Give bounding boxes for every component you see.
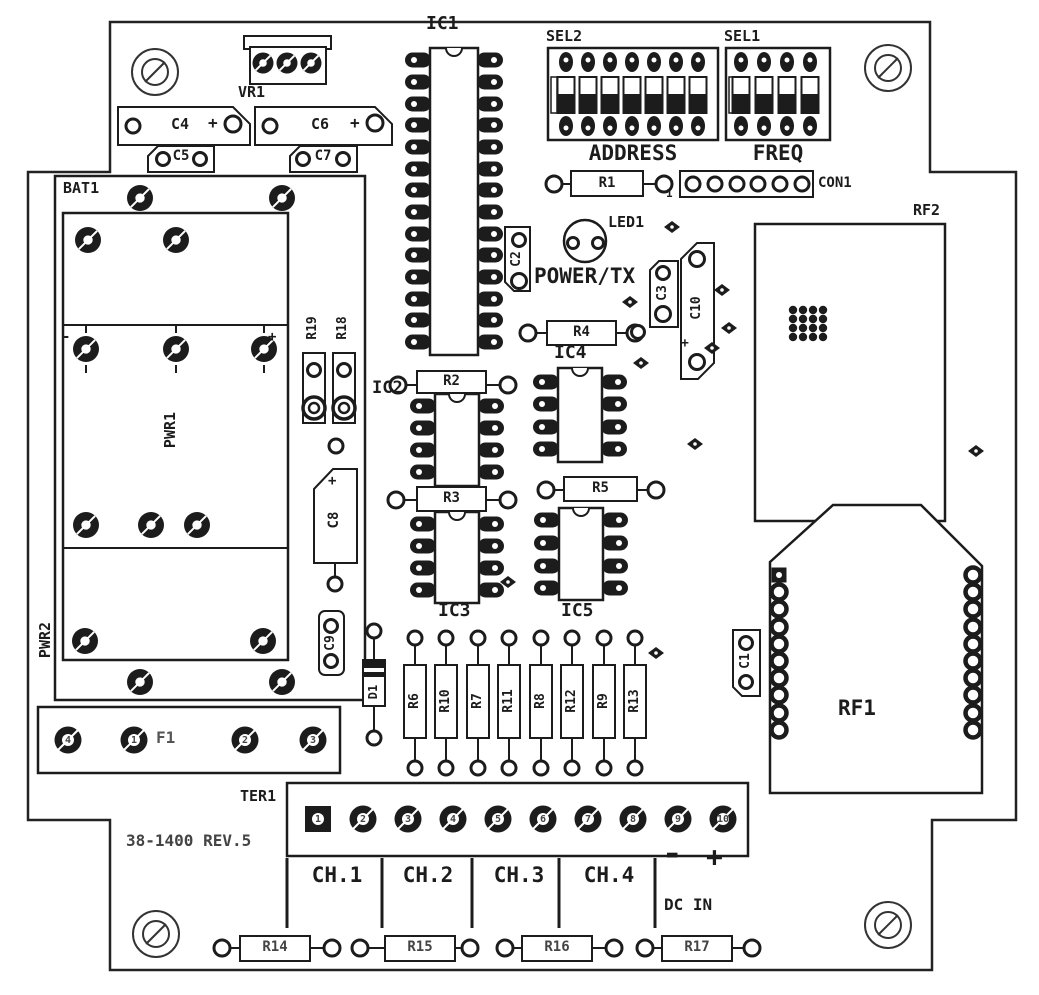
rf2-grid-dot xyxy=(799,324,807,332)
ic-pin xyxy=(410,517,436,532)
pad xyxy=(225,116,241,132)
ic-pin xyxy=(533,420,559,435)
rf2-grid-dot xyxy=(799,315,807,323)
pad xyxy=(966,723,981,738)
label-revision: 38-1400 REV.5 xyxy=(126,832,251,850)
pad xyxy=(439,631,453,645)
pad xyxy=(408,761,422,775)
ic-pin xyxy=(534,581,560,596)
label-ter1: TER1 xyxy=(240,788,276,805)
ic-pin xyxy=(533,375,559,390)
label-r16: R16 xyxy=(522,940,592,955)
pad xyxy=(568,238,579,249)
pad xyxy=(637,940,653,956)
label-address: ADDRESS xyxy=(548,142,718,165)
pad xyxy=(772,671,787,686)
label-r9: R9 xyxy=(594,661,614,741)
rf2-grid-dot xyxy=(799,333,807,341)
pad xyxy=(772,620,787,635)
dip-handle xyxy=(668,94,684,112)
pad xyxy=(597,631,611,645)
pad xyxy=(500,492,516,508)
pad xyxy=(606,940,622,956)
label-r11: R11 xyxy=(499,661,519,741)
label-ch3: CH.3 xyxy=(484,864,554,887)
pad xyxy=(263,119,277,133)
ic-pin xyxy=(477,183,503,198)
ic-pin xyxy=(534,536,560,551)
pad xyxy=(966,688,981,703)
label-c4-plus: + xyxy=(208,114,218,132)
svg-text:9: 9 xyxy=(675,814,681,825)
rf2-module-outline xyxy=(755,224,945,521)
svg-text:1: 1 xyxy=(131,735,137,746)
svg-text:5: 5 xyxy=(495,814,501,825)
ic-pin xyxy=(410,561,436,576)
pad xyxy=(538,482,554,498)
label-ch4: CH.4 xyxy=(574,864,644,887)
pad xyxy=(966,585,981,600)
label-c7: C7 xyxy=(298,149,348,164)
dip-handle xyxy=(733,94,749,112)
pad xyxy=(730,177,744,191)
pad xyxy=(966,602,981,617)
ic-pin xyxy=(405,183,431,198)
label-dc-in: DC IN xyxy=(664,896,712,914)
ic-pin xyxy=(477,205,503,220)
ic-pin xyxy=(405,97,431,112)
rf2-grid-dot xyxy=(789,315,797,323)
label-sel2: SEL2 xyxy=(546,28,582,45)
label-sel1: SEL1 xyxy=(724,28,760,45)
ic-pin xyxy=(533,442,559,457)
pad xyxy=(462,940,478,956)
label-freq: FREQ xyxy=(726,142,830,165)
label-r6: R6 xyxy=(405,661,425,741)
rf2-grid-dot xyxy=(819,324,827,332)
svg-text:4: 4 xyxy=(450,814,456,825)
dip-handle xyxy=(690,94,706,112)
pad xyxy=(367,115,383,131)
label-c8: C8 xyxy=(324,480,344,560)
svg-text:7: 7 xyxy=(585,814,591,825)
ic-pin xyxy=(405,270,431,285)
label-pwr1: PWR1 xyxy=(160,390,180,470)
dip-handle xyxy=(602,94,618,112)
svg-text:1: 1 xyxy=(315,814,321,825)
pad xyxy=(772,688,787,703)
rf2-grid-dot xyxy=(789,324,797,332)
label-c9: C9 xyxy=(321,603,341,683)
pad xyxy=(772,706,787,721)
label-dc-plus: + xyxy=(706,842,723,873)
ic-pin xyxy=(478,517,504,532)
ic-pin xyxy=(405,227,431,242)
ic-pin xyxy=(405,75,431,90)
pad xyxy=(565,631,579,645)
label-c8-plus: + xyxy=(328,474,336,489)
ic-pin xyxy=(477,270,503,285)
ic-pin xyxy=(405,313,431,328)
pad xyxy=(966,671,981,686)
ic-pin xyxy=(405,205,431,220)
svg-text:2: 2 xyxy=(360,814,366,825)
ic-pin xyxy=(405,335,431,350)
ic-pin xyxy=(534,513,560,528)
pad xyxy=(628,761,642,775)
ic-pin xyxy=(410,443,436,458)
pad xyxy=(565,761,579,775)
label-r2: R2 xyxy=(417,374,486,389)
ic-pin xyxy=(410,583,436,598)
ic-pin xyxy=(478,399,504,414)
label-pwr-plus: + xyxy=(268,330,276,345)
label-c2: C2 xyxy=(507,219,527,299)
label-r3: R3 xyxy=(417,491,486,506)
label-d1: D1 xyxy=(363,652,383,732)
pad xyxy=(471,761,485,775)
ic-pin xyxy=(601,375,627,390)
svg-text:6: 6 xyxy=(540,814,546,825)
ic-pin xyxy=(405,292,431,307)
dip-handle xyxy=(624,94,640,112)
pad xyxy=(214,940,230,956)
ic-pin xyxy=(477,75,503,90)
label-c6: C6 xyxy=(290,116,350,133)
ic-pin xyxy=(405,162,431,177)
label-rf1: RF1 xyxy=(838,697,876,720)
rf2-grid-dot xyxy=(819,333,827,341)
rf2-grid-dot xyxy=(789,306,797,314)
label-c3: C3 xyxy=(653,253,673,333)
rf1-module-outline xyxy=(770,505,982,793)
label-r4: R4 xyxy=(547,325,616,340)
rf2-grid-dot xyxy=(809,333,817,341)
rf2-grid-dot xyxy=(819,315,827,323)
ic-pin xyxy=(477,248,503,263)
label-r5: R5 xyxy=(564,481,637,496)
pad xyxy=(339,403,349,413)
rf2-grid-dot xyxy=(809,306,817,314)
label-power-tx: POWER/TX xyxy=(534,265,635,288)
pad xyxy=(772,723,787,738)
pad xyxy=(324,940,340,956)
ic-pin xyxy=(477,162,503,177)
ic-pin xyxy=(478,443,504,458)
ic-pin xyxy=(478,561,504,576)
pad xyxy=(690,355,705,370)
label-ic5: IC5 xyxy=(561,601,594,621)
pad xyxy=(329,439,343,453)
pad xyxy=(795,177,809,191)
pad xyxy=(593,238,604,249)
ic-pin xyxy=(601,397,627,412)
pad xyxy=(632,326,645,339)
label-f1: F1 xyxy=(156,729,175,747)
label-ic3: IC3 xyxy=(438,601,471,621)
ic-pin xyxy=(478,583,504,598)
pad xyxy=(520,325,536,341)
ic-pin xyxy=(477,313,503,328)
label-r14: R14 xyxy=(240,940,310,955)
dip-handle xyxy=(580,94,596,112)
pad xyxy=(744,940,760,956)
pad xyxy=(772,602,787,617)
pad xyxy=(534,761,548,775)
label-r15: R15 xyxy=(385,940,455,955)
ic-pin xyxy=(477,53,503,68)
label-r1: R1 xyxy=(571,176,643,191)
ic-pin xyxy=(601,420,627,435)
ic-pin xyxy=(405,140,431,155)
svg-text:10: 10 xyxy=(717,814,729,825)
pad xyxy=(966,706,981,721)
pad xyxy=(966,654,981,669)
pad xyxy=(388,492,404,508)
label-ic2: IC2 xyxy=(372,379,403,398)
label-r10: R10 xyxy=(436,661,456,741)
ic-pin xyxy=(405,248,431,263)
label-c6-plus: + xyxy=(350,114,360,132)
label-ch1: CH.1 xyxy=(302,864,372,887)
label-r12: R12 xyxy=(562,661,582,741)
svg-text:3: 3 xyxy=(405,814,411,825)
label-r17: R17 xyxy=(662,940,732,955)
pad xyxy=(773,177,787,191)
label-pwr-minus: - xyxy=(62,330,70,345)
ic-pin xyxy=(410,399,436,414)
label-r13: R13 xyxy=(625,661,645,741)
ic-pin xyxy=(602,581,628,596)
rf2-grid-dot xyxy=(799,306,807,314)
label-ch2: CH.2 xyxy=(393,864,463,887)
ic-pin xyxy=(478,539,504,554)
label-con1-pin1: 1 xyxy=(666,188,673,200)
label-c10-plus: + xyxy=(681,337,689,351)
pad xyxy=(772,654,787,669)
label-ic4: IC4 xyxy=(554,343,587,363)
pad xyxy=(471,631,485,645)
svg-text:3: 3 xyxy=(310,735,316,746)
pad xyxy=(708,177,722,191)
label-r18: R18 xyxy=(333,288,353,368)
rf2-grid-dot xyxy=(809,324,817,332)
pad xyxy=(328,577,342,591)
ic-pin xyxy=(534,559,560,574)
label-con1: CON1 xyxy=(818,176,852,191)
pcb-layout-diagram: 412312345678910 VR1 C4 + C5 C6 + C7 BAT1… xyxy=(0,0,1039,995)
ic-pin xyxy=(410,421,436,436)
label-r8: R8 xyxy=(531,661,551,741)
pad xyxy=(126,119,140,133)
label-c1: C1 xyxy=(736,621,756,701)
pad xyxy=(966,620,981,635)
label-c10: C10 xyxy=(687,268,707,348)
rf2-grid-dot xyxy=(819,306,827,314)
label-r19: R19 xyxy=(303,288,323,368)
pad xyxy=(966,568,981,583)
ic-pin xyxy=(601,442,627,457)
pad xyxy=(367,624,381,638)
ic-pin xyxy=(477,97,503,112)
dip-handle xyxy=(779,94,795,112)
svg-text:2: 2 xyxy=(242,735,248,746)
pad xyxy=(690,252,705,267)
pad xyxy=(772,585,787,600)
ic-pin xyxy=(477,140,503,155)
pad xyxy=(546,176,562,192)
svg-text:4: 4 xyxy=(65,735,71,746)
label-led1: LED1 xyxy=(608,214,644,231)
label-c4: C4 xyxy=(150,116,210,133)
label-pwr2: PWR2 xyxy=(35,600,55,680)
ic-pin xyxy=(477,335,503,350)
pad xyxy=(309,403,319,413)
ic-pin xyxy=(405,53,431,68)
pad xyxy=(534,631,548,645)
pad xyxy=(439,761,453,775)
ic-pin xyxy=(477,292,503,307)
pad xyxy=(497,940,513,956)
rf2-grid-dot xyxy=(809,315,817,323)
ic-pin xyxy=(602,559,628,574)
pad xyxy=(500,377,516,393)
f1-fuse-outline xyxy=(38,707,340,773)
label-vr1: VR1 xyxy=(238,84,265,101)
pad xyxy=(502,761,516,775)
pad xyxy=(751,177,765,191)
label-r7: R7 xyxy=(468,661,488,741)
svg-text:8: 8 xyxy=(630,814,636,825)
dip-handle xyxy=(646,94,662,112)
label-bat1: BAT1 xyxy=(63,180,99,197)
pad xyxy=(597,761,611,775)
dip-handle xyxy=(756,94,772,112)
pad xyxy=(352,940,368,956)
ic-pin xyxy=(478,465,504,480)
ic-pin xyxy=(533,397,559,412)
ic-pin xyxy=(602,536,628,551)
pad xyxy=(772,637,787,652)
pad xyxy=(966,637,981,652)
dip-handle xyxy=(802,94,818,112)
pad xyxy=(367,731,381,745)
pad xyxy=(502,631,516,645)
ic-pin xyxy=(410,465,436,480)
ic-pin xyxy=(410,539,436,554)
pad xyxy=(628,631,642,645)
label-rf2: RF2 xyxy=(913,202,940,219)
pad xyxy=(686,177,700,191)
ic-pin xyxy=(602,513,628,528)
rf2-grid-dot xyxy=(789,333,797,341)
ic-pin xyxy=(477,118,503,133)
label-ic1: IC1 xyxy=(426,14,459,34)
dip-handle xyxy=(558,94,574,112)
pad xyxy=(648,482,664,498)
label-c5: C5 xyxy=(156,149,206,164)
pad xyxy=(408,631,422,645)
ic-pin xyxy=(478,421,504,436)
label-dc-minus: - xyxy=(662,836,682,873)
ic-pin xyxy=(477,227,503,242)
ic-pin xyxy=(405,118,431,133)
